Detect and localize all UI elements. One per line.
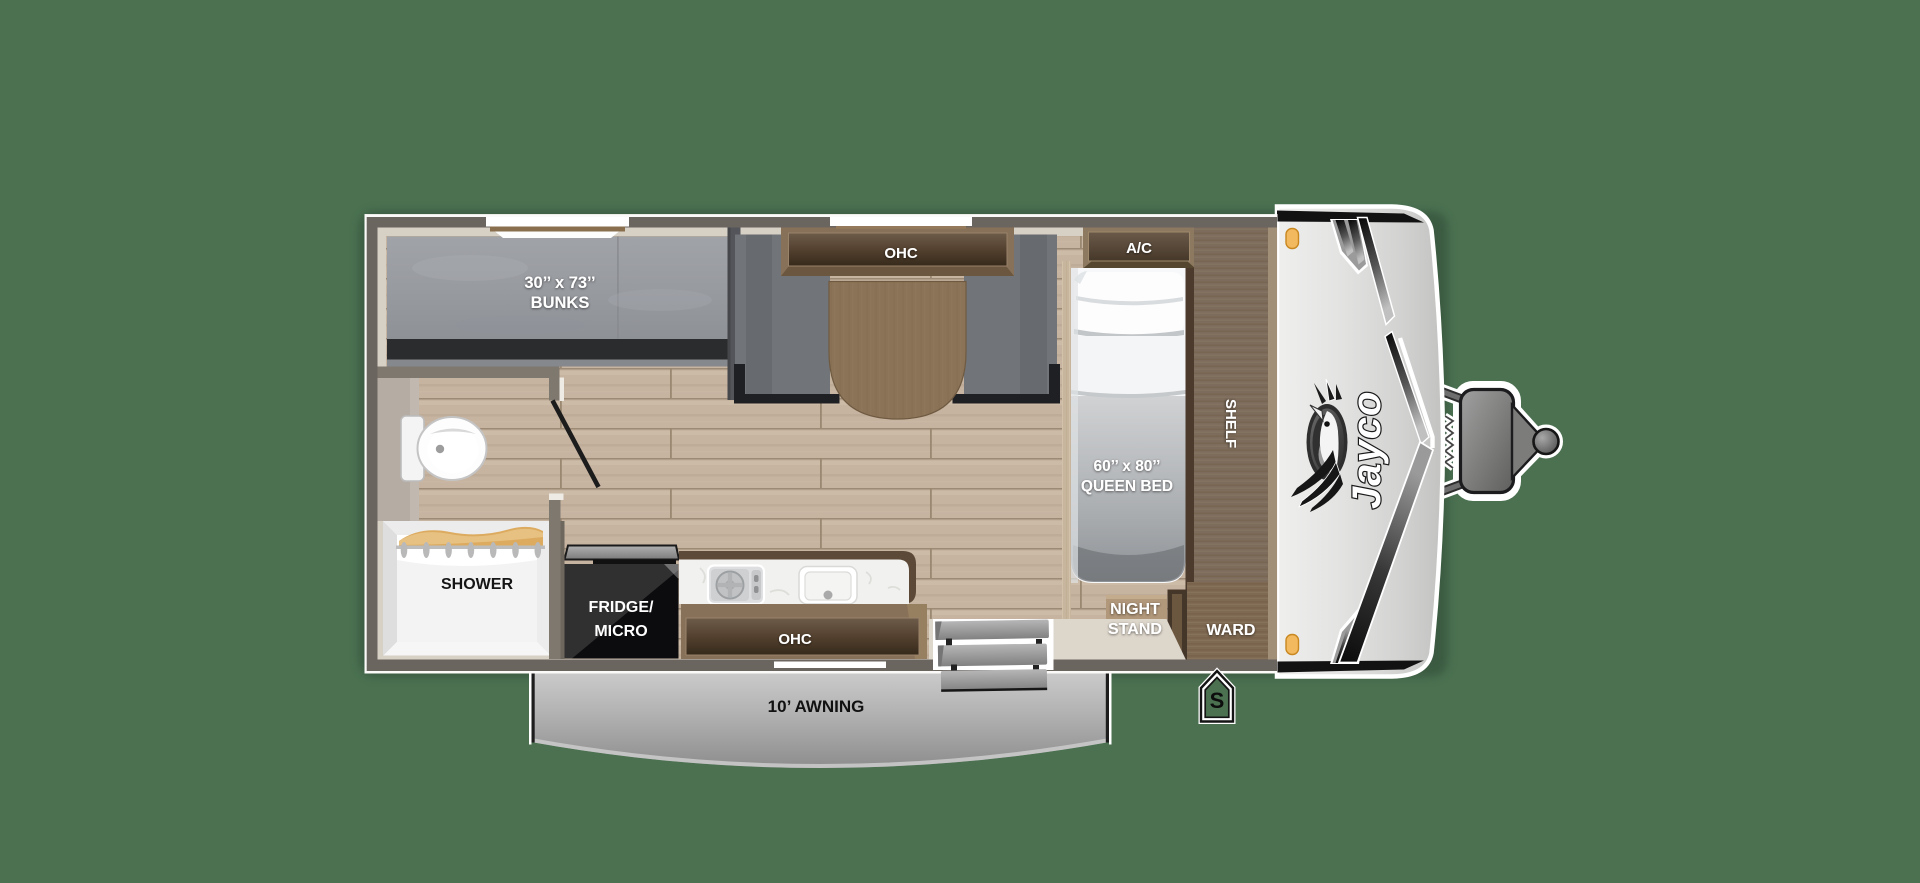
svg-text:QUEEN BED: QUEEN BED xyxy=(1081,478,1173,495)
svg-text:A/C: A/C xyxy=(1126,240,1152,257)
svg-text:OHC: OHC xyxy=(884,245,918,262)
svg-text:Jayco: Jayco xyxy=(1345,391,1389,509)
svg-text:WARD: WARD xyxy=(1207,622,1256,639)
svg-text:MICRO: MICRO xyxy=(594,623,647,640)
svg-text:STAND: STAND xyxy=(1108,621,1162,638)
svg-text:10’ AWNING: 10’ AWNING xyxy=(768,697,865,716)
svg-text:BUNKS: BUNKS xyxy=(531,294,590,312)
svg-text:SHELF: SHELF xyxy=(1222,399,1239,448)
svg-text:30’’ x 73’’: 30’’ x 73’’ xyxy=(524,274,595,292)
svg-text:SHOWER: SHOWER xyxy=(441,576,513,593)
svg-text:S: S xyxy=(1210,688,1225,713)
svg-text:60’’ x 80’’: 60’’ x 80’’ xyxy=(1094,458,1161,475)
svg-text:NIGHT: NIGHT xyxy=(1110,601,1160,618)
svg-text:OHC: OHC xyxy=(778,631,812,648)
svg-text:FRIDGE/: FRIDGE/ xyxy=(589,599,654,616)
